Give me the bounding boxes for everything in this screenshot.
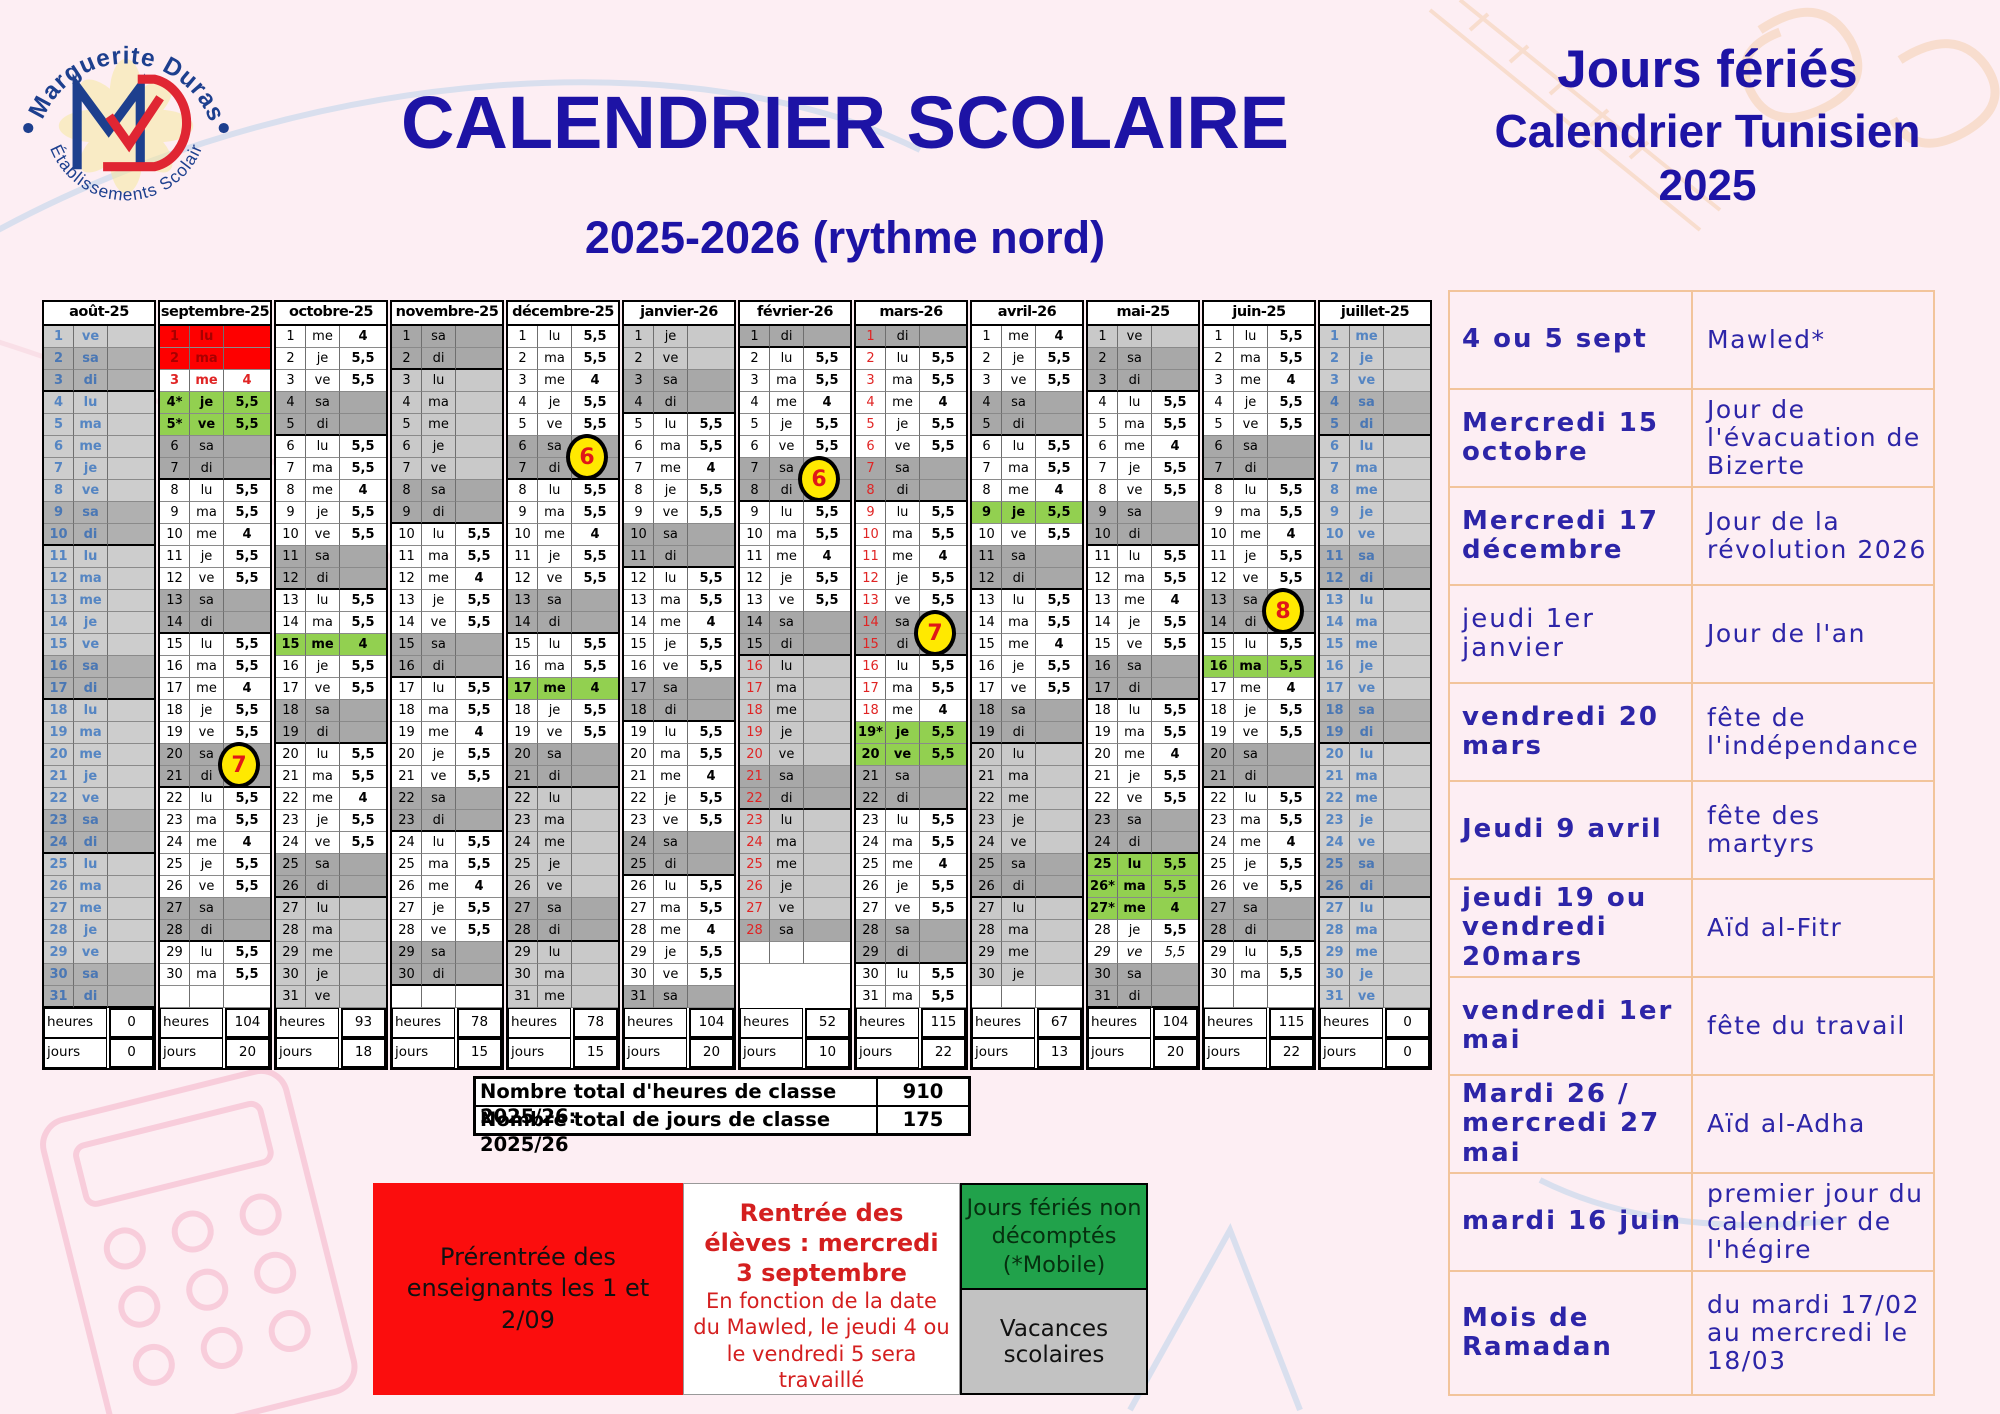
day-number: 30 xyxy=(624,964,654,986)
day-number: 19 xyxy=(972,722,1002,744)
day-number: 14 xyxy=(44,612,74,634)
day-number: 12 xyxy=(740,568,770,590)
day-row: 19ma5,5 xyxy=(1088,722,1198,744)
day-number: 3 xyxy=(392,370,422,392)
day-number: 27 xyxy=(740,898,770,920)
day-number: 15 xyxy=(856,634,886,656)
day-number: 18 xyxy=(1204,700,1234,722)
day-hours xyxy=(1384,656,1430,678)
day-row: 11sa xyxy=(972,546,1082,568)
day-row: 30je xyxy=(1320,964,1430,986)
day-row: 13sa xyxy=(160,590,270,612)
day-number: 25 xyxy=(392,854,422,876)
day-abbrev: je xyxy=(190,392,224,414)
day-abbrev: ve xyxy=(74,942,108,964)
day-number: 8 xyxy=(160,480,190,502)
day-abbrev: ma xyxy=(1234,348,1268,370)
month-hours-row: heures104 xyxy=(1088,1008,1198,1038)
day-number: 13 xyxy=(624,590,654,612)
day-number: 26 xyxy=(856,876,886,898)
day-row: 26je5,5 xyxy=(856,876,966,898)
day-abbrev: lu xyxy=(538,942,572,964)
day-hours xyxy=(456,480,502,502)
day-abbrev: ve xyxy=(886,898,920,920)
day-row: 30lu5,5 xyxy=(856,964,966,986)
day-hours: 5,5 xyxy=(688,898,734,920)
day-number: 12 xyxy=(276,568,306,590)
day-row: 8ve xyxy=(44,480,154,502)
day-row: 12lu5,5 xyxy=(624,568,734,590)
day-abbrev: me xyxy=(74,590,108,612)
day-hours xyxy=(1384,568,1430,590)
day-hours: 5,5 xyxy=(1152,722,1198,744)
day-number: 4 xyxy=(276,392,306,414)
day-row: 8sa xyxy=(392,480,502,502)
day-number: 3 xyxy=(1088,370,1118,392)
holiday-name: Mawled* xyxy=(1693,292,1933,388)
day-abbrev: me xyxy=(886,546,920,568)
day-hours xyxy=(1384,678,1430,700)
day-row: 11sa xyxy=(1320,546,1430,568)
day-hours: 5,5 xyxy=(456,832,502,854)
days-label: jours xyxy=(276,1038,339,1068)
day-hours xyxy=(804,920,850,942)
day-hours: 5,5 xyxy=(1152,876,1198,898)
day-hours xyxy=(108,524,154,546)
hours-label: heures xyxy=(44,1008,107,1038)
day-hours: 5,5 xyxy=(1152,546,1198,568)
day-number: 25 xyxy=(44,854,74,876)
day-abbrev: ma xyxy=(770,678,804,700)
day-number: 15 xyxy=(1204,634,1234,656)
day-hours: 5,5 xyxy=(572,656,618,678)
day-number: 11 xyxy=(508,546,538,568)
day-hours: 5,5 xyxy=(1268,810,1314,832)
day-hours: 5,5 xyxy=(456,678,502,700)
day-number: 24 xyxy=(740,832,770,854)
day-hours: 4 xyxy=(688,920,734,942)
day-row: 23di xyxy=(392,810,502,832)
day-row: 26ve5,5 xyxy=(1204,876,1314,898)
day-number: 9 xyxy=(1088,502,1118,524)
day-number: 12 xyxy=(856,568,886,590)
day-abbrev: je xyxy=(1002,348,1036,370)
holiday-row: vendredi 1er maifête du travail xyxy=(1450,978,1933,1076)
day-number: 10 xyxy=(740,524,770,546)
day-row: 1je xyxy=(624,326,734,348)
day-hours xyxy=(108,810,154,832)
day-hours: 5,5 xyxy=(1152,634,1198,656)
month-header: novembre-25 xyxy=(392,302,502,326)
day-hours xyxy=(1384,876,1430,898)
day-number: 14 xyxy=(624,612,654,634)
day-number: 2 xyxy=(856,348,886,370)
day-row: 23ma xyxy=(508,810,618,832)
day-number: 7 xyxy=(624,458,654,480)
month-header: août-25 xyxy=(44,302,154,326)
day-number: 16 xyxy=(160,656,190,678)
day-row: 10ma5,5 xyxy=(740,524,850,546)
day-abbrev: ma xyxy=(422,854,456,876)
day-row: 29di xyxy=(856,942,966,964)
day-abbrev: di xyxy=(190,612,224,634)
day-number: 21 xyxy=(1088,766,1118,788)
day-number: 27 xyxy=(44,898,74,920)
day-row: 4*je5,5 xyxy=(160,392,270,414)
day-hours: 5,5 xyxy=(456,546,502,568)
day-abbrev: di xyxy=(770,788,804,810)
day-hours: 5,5 xyxy=(340,766,386,788)
day-hours: 5,5 xyxy=(804,568,850,590)
day-row: 8me4 xyxy=(276,480,386,502)
day-hours: 5,5 xyxy=(572,392,618,414)
day-hours: 4 xyxy=(224,678,270,700)
day-row: 12je5,5 xyxy=(740,568,850,590)
month-hours-row: heures104 xyxy=(624,1008,734,1038)
day-number: 15 xyxy=(276,634,306,656)
day-row: 26lu5,5 xyxy=(624,876,734,898)
day-hours: 5,5 xyxy=(224,700,270,722)
day-row: 15lu5,5 xyxy=(160,634,270,656)
day-number: 24 xyxy=(972,832,1002,854)
day-abbrev: je xyxy=(190,700,224,722)
day-number: 15 xyxy=(740,634,770,656)
holiday-name: Aïd al-Fitr xyxy=(1693,880,1933,976)
day-hours: 5,5 xyxy=(224,480,270,502)
day-row: 19ma xyxy=(44,722,154,744)
day-hours: 5,5 xyxy=(456,744,502,766)
day-abbrev: lu xyxy=(1234,480,1268,502)
day-number: 15 xyxy=(624,634,654,656)
day-hours xyxy=(688,854,734,876)
day-number: 27 xyxy=(972,898,1002,920)
day-hours: 4 xyxy=(224,524,270,546)
day-abbrev: ma xyxy=(1350,612,1384,634)
day-number: 14 xyxy=(392,612,422,634)
day-row: 22me4 xyxy=(276,788,386,810)
day-row: 13me xyxy=(44,590,154,612)
day-hours xyxy=(456,392,502,414)
day-number: 5 xyxy=(1320,414,1350,436)
day-hours: 5,5 xyxy=(1268,348,1314,370)
day-number: 23 xyxy=(160,810,190,832)
day-number: 4 xyxy=(392,392,422,414)
day-hours: 4 xyxy=(1152,590,1198,612)
day-number: 29 xyxy=(624,942,654,964)
day-abbrev: ve xyxy=(306,678,340,700)
day-hours: 5,5 xyxy=(920,656,966,678)
day-row: 21di xyxy=(508,766,618,788)
day-abbrev: me xyxy=(190,370,224,392)
day-number: 18 xyxy=(508,700,538,722)
day-number: 14 xyxy=(856,612,886,634)
day-row: 23je5,5 xyxy=(276,810,386,832)
day-hours: 5,5 xyxy=(224,722,270,744)
day-number: 1 xyxy=(508,326,538,348)
day-abbrev: di xyxy=(654,546,688,568)
day-hours xyxy=(1036,414,1082,436)
day-row: 3di xyxy=(1088,370,1198,392)
day-hours xyxy=(688,546,734,568)
month-hours-row: heures0 xyxy=(1320,1008,1430,1038)
calendar-poster: Marguerite Duras Établissements Scolaire… xyxy=(0,0,2000,1414)
day-hours xyxy=(1036,964,1082,986)
day-number: 24 xyxy=(276,832,306,854)
day-hours: 5,5 xyxy=(340,524,386,546)
day-hours: 5,5 xyxy=(1036,436,1082,458)
month-header: mai-25 xyxy=(1088,302,1198,326)
day-row: 9je xyxy=(1320,502,1430,524)
day-abbrev: lu xyxy=(770,348,804,370)
day-abbrev: di xyxy=(654,392,688,414)
day-row: 31di xyxy=(1088,986,1198,1008)
day-hours xyxy=(1036,766,1082,788)
day-hours: 5,5 xyxy=(456,854,502,876)
day-abbrev: ve xyxy=(422,766,456,788)
day-number: 15 xyxy=(972,634,1002,656)
day-number: 31 xyxy=(856,986,886,1008)
day-number: 23 xyxy=(508,810,538,832)
day-row: 25lu5,5 xyxy=(1088,854,1198,876)
day-number: 2 xyxy=(276,348,306,370)
day-row: 3ma5,5 xyxy=(740,370,850,392)
day-hours xyxy=(1384,392,1430,414)
day-number: 26 xyxy=(740,876,770,898)
day-row: 5ma xyxy=(44,414,154,436)
day-abbrev: ve xyxy=(422,920,456,942)
day-abbrev: sa xyxy=(74,810,108,832)
day-row: 7sa xyxy=(856,458,966,480)
holiday-date: Jeudi 9 avril xyxy=(1450,782,1693,878)
day-hours: 5,5 xyxy=(1036,348,1082,370)
day-hours xyxy=(108,678,154,700)
day-hours xyxy=(1036,942,1082,964)
total-days-row: Nombre total de jours de classe 2025/26 … xyxy=(475,1106,969,1134)
day-hours: 5,5 xyxy=(688,964,734,986)
day-abbrev: ma xyxy=(306,458,340,480)
day-row: 19di xyxy=(1320,722,1430,744)
day-hours xyxy=(108,920,154,942)
day-row: 25sa xyxy=(276,854,386,876)
day-abbrev: je xyxy=(654,788,688,810)
day-abbrev: me xyxy=(886,854,920,876)
month-hours-row: heures78 xyxy=(392,1008,502,1038)
day-number: 27 xyxy=(392,898,422,920)
day-abbrev: lu xyxy=(886,810,920,832)
day-abbrev: lu xyxy=(1350,744,1384,766)
day-abbrev: sa xyxy=(1118,656,1152,678)
day-number: 9 xyxy=(624,502,654,524)
day-number: 31 xyxy=(1088,986,1118,1008)
day-abbrev: ma xyxy=(190,348,224,370)
day-row: 3sa xyxy=(624,370,734,392)
day-hours xyxy=(108,854,154,876)
day-abbrev: ve xyxy=(306,370,340,392)
day-row: 6me4 xyxy=(1088,436,1198,458)
day-row: 8di xyxy=(856,480,966,502)
day-number: 6 xyxy=(1088,436,1118,458)
day-hours: 4 xyxy=(1036,326,1082,348)
days-value: 0 xyxy=(109,1038,154,1068)
day-row: 30sa xyxy=(1088,964,1198,986)
day-number: 9 xyxy=(1320,502,1350,524)
day-row: 28ma xyxy=(972,920,1082,942)
day-number: 28 xyxy=(276,920,306,942)
day-abbrev: di xyxy=(1002,414,1036,436)
day-row: 6me xyxy=(44,436,154,458)
month-column-janvier-26: janvier-261je2ve3sa4di5lu5,56ma5,57me48j… xyxy=(622,300,736,1070)
day-row: 22lu5,5 xyxy=(160,788,270,810)
day-row: 4sa xyxy=(276,392,386,414)
day-number: 6 xyxy=(972,436,1002,458)
day-row: 3me4 xyxy=(508,370,618,392)
day-number: 4 xyxy=(856,392,886,414)
day-row: 12di xyxy=(276,568,386,590)
day-number xyxy=(392,986,422,1008)
day-row: 3ve xyxy=(1320,370,1430,392)
day-row: 14je xyxy=(44,612,154,634)
day-row: 29ve xyxy=(44,942,154,964)
day-row: 31ve xyxy=(276,986,386,1008)
day-abbrev: je xyxy=(886,876,920,898)
day-abbrev: me xyxy=(538,986,572,1008)
day-row: 19di xyxy=(972,722,1082,744)
day-row: 26je xyxy=(740,876,850,898)
day-hours xyxy=(1152,810,1198,832)
day-abbrev: di xyxy=(306,876,340,898)
day-number xyxy=(740,942,770,964)
day-number: 11 xyxy=(1320,546,1350,568)
day-abbrev: ma xyxy=(1234,502,1268,524)
day-abbrev: di xyxy=(1118,678,1152,700)
day-abbrev: di xyxy=(538,766,572,788)
day-abbrev: sa xyxy=(74,348,108,370)
day-number: 1 xyxy=(1320,326,1350,348)
day-abbrev: sa xyxy=(306,700,340,722)
day-hours xyxy=(456,656,502,678)
day-abbrev: ma xyxy=(654,590,688,612)
day-number: 16 xyxy=(624,656,654,678)
day-hours xyxy=(1384,436,1430,458)
holiday-name: fête de l'indépendance xyxy=(1693,684,1933,780)
day-row: 12ma xyxy=(44,568,154,590)
day-hours: 4 xyxy=(688,458,734,480)
day-hours xyxy=(108,986,154,1008)
day-row: 5je5,5 xyxy=(740,414,850,436)
day-hours xyxy=(108,436,154,458)
day-abbrev: sa xyxy=(1118,502,1152,524)
day-row: 16je xyxy=(1320,656,1430,678)
day-hours xyxy=(804,744,850,766)
day-hours xyxy=(108,348,154,370)
day-number: 11 xyxy=(740,546,770,568)
day-hours xyxy=(1384,898,1430,920)
day-number: 10 xyxy=(1088,524,1118,546)
day-number: 14 xyxy=(508,612,538,634)
day-row: 22je5,5 xyxy=(624,788,734,810)
day-number: 30 xyxy=(508,964,538,986)
days-value: 13 xyxy=(1037,1038,1082,1068)
day-hours xyxy=(1268,898,1314,920)
day-row: 6ve5,5 xyxy=(740,436,850,458)
day-row: 27lu xyxy=(1320,898,1430,920)
day-row: 26*ma5,5 xyxy=(1088,876,1198,898)
week-number-circle: 8 xyxy=(1262,588,1304,634)
day-abbrev: lu xyxy=(770,656,804,678)
day-number: 12 xyxy=(44,568,74,590)
day-hours: 5,5 xyxy=(340,612,386,634)
day-abbrev: di xyxy=(422,348,456,370)
day-row: 14sa xyxy=(740,612,850,634)
month-days-row: jours18 xyxy=(276,1038,386,1068)
day-number: 14 xyxy=(972,612,1002,634)
day-number: 13 xyxy=(392,590,422,612)
day-hours xyxy=(1268,744,1314,766)
day-number: 4 xyxy=(1088,392,1118,414)
day-row: 18je5,5 xyxy=(508,700,618,722)
day-row: 9ma5,5 xyxy=(1204,502,1314,524)
day-number: 26 xyxy=(508,876,538,898)
day-hours: 5,5 xyxy=(688,634,734,656)
month-column-mars-26: mars-261di2lu5,53ma5,54me45je5,56ve5,57s… xyxy=(854,300,968,1070)
holiday-row: Mercredi 15 octobreJour de l'évacuation … xyxy=(1450,390,1933,488)
day-hours xyxy=(1384,700,1430,722)
day-abbrev: je xyxy=(886,722,920,744)
day-hours xyxy=(340,942,386,964)
day-abbrev: ve xyxy=(538,876,572,898)
day-hours xyxy=(920,480,966,502)
day-hours: 5,5 xyxy=(572,568,618,590)
day-row: 25me4 xyxy=(856,854,966,876)
day-abbrev: sa xyxy=(886,920,920,942)
day-row: 8ve5,5 xyxy=(1088,480,1198,502)
day-abbrev: je xyxy=(422,744,456,766)
day-hours: 4 xyxy=(1268,678,1314,700)
day-abbrev: sa xyxy=(1118,810,1152,832)
day-number: 18 xyxy=(972,700,1002,722)
day-row: 1di xyxy=(740,326,850,348)
day-row: 14di xyxy=(508,612,618,634)
day-abbrev: je xyxy=(1002,502,1036,524)
day-row: 1ve xyxy=(44,326,154,348)
legend-vacances: Vacances scolaires xyxy=(960,1290,1148,1395)
day-number: 1 xyxy=(1204,326,1234,348)
day-hours xyxy=(804,612,850,634)
day-row: 14ma5,5 xyxy=(972,612,1082,634)
day-abbrev: ma xyxy=(654,744,688,766)
day-abbrev: ve xyxy=(1002,370,1036,392)
day-row: 31ve xyxy=(1320,986,1430,1008)
day-abbrev: di xyxy=(1234,766,1268,788)
day-number: 2 xyxy=(1204,348,1234,370)
day-number: 11 xyxy=(276,546,306,568)
day-number: 29 xyxy=(1088,942,1118,964)
day-row: 26di xyxy=(276,876,386,898)
day-abbrev: lu xyxy=(1118,392,1152,414)
day-row: 26di xyxy=(972,876,1082,898)
day-row: 13me4 xyxy=(1088,590,1198,612)
day-row: 16di xyxy=(392,656,502,678)
day-abbrev: ve xyxy=(770,744,804,766)
day-hours: 5,5 xyxy=(340,348,386,370)
day-number: 6 xyxy=(44,436,74,458)
day-row: 15ve xyxy=(44,634,154,656)
day-row: 18me4 xyxy=(856,700,966,722)
days-label: jours xyxy=(508,1038,571,1068)
day-hours xyxy=(804,678,850,700)
day-abbrev: ma xyxy=(190,656,224,678)
day-number: 7 xyxy=(508,458,538,480)
